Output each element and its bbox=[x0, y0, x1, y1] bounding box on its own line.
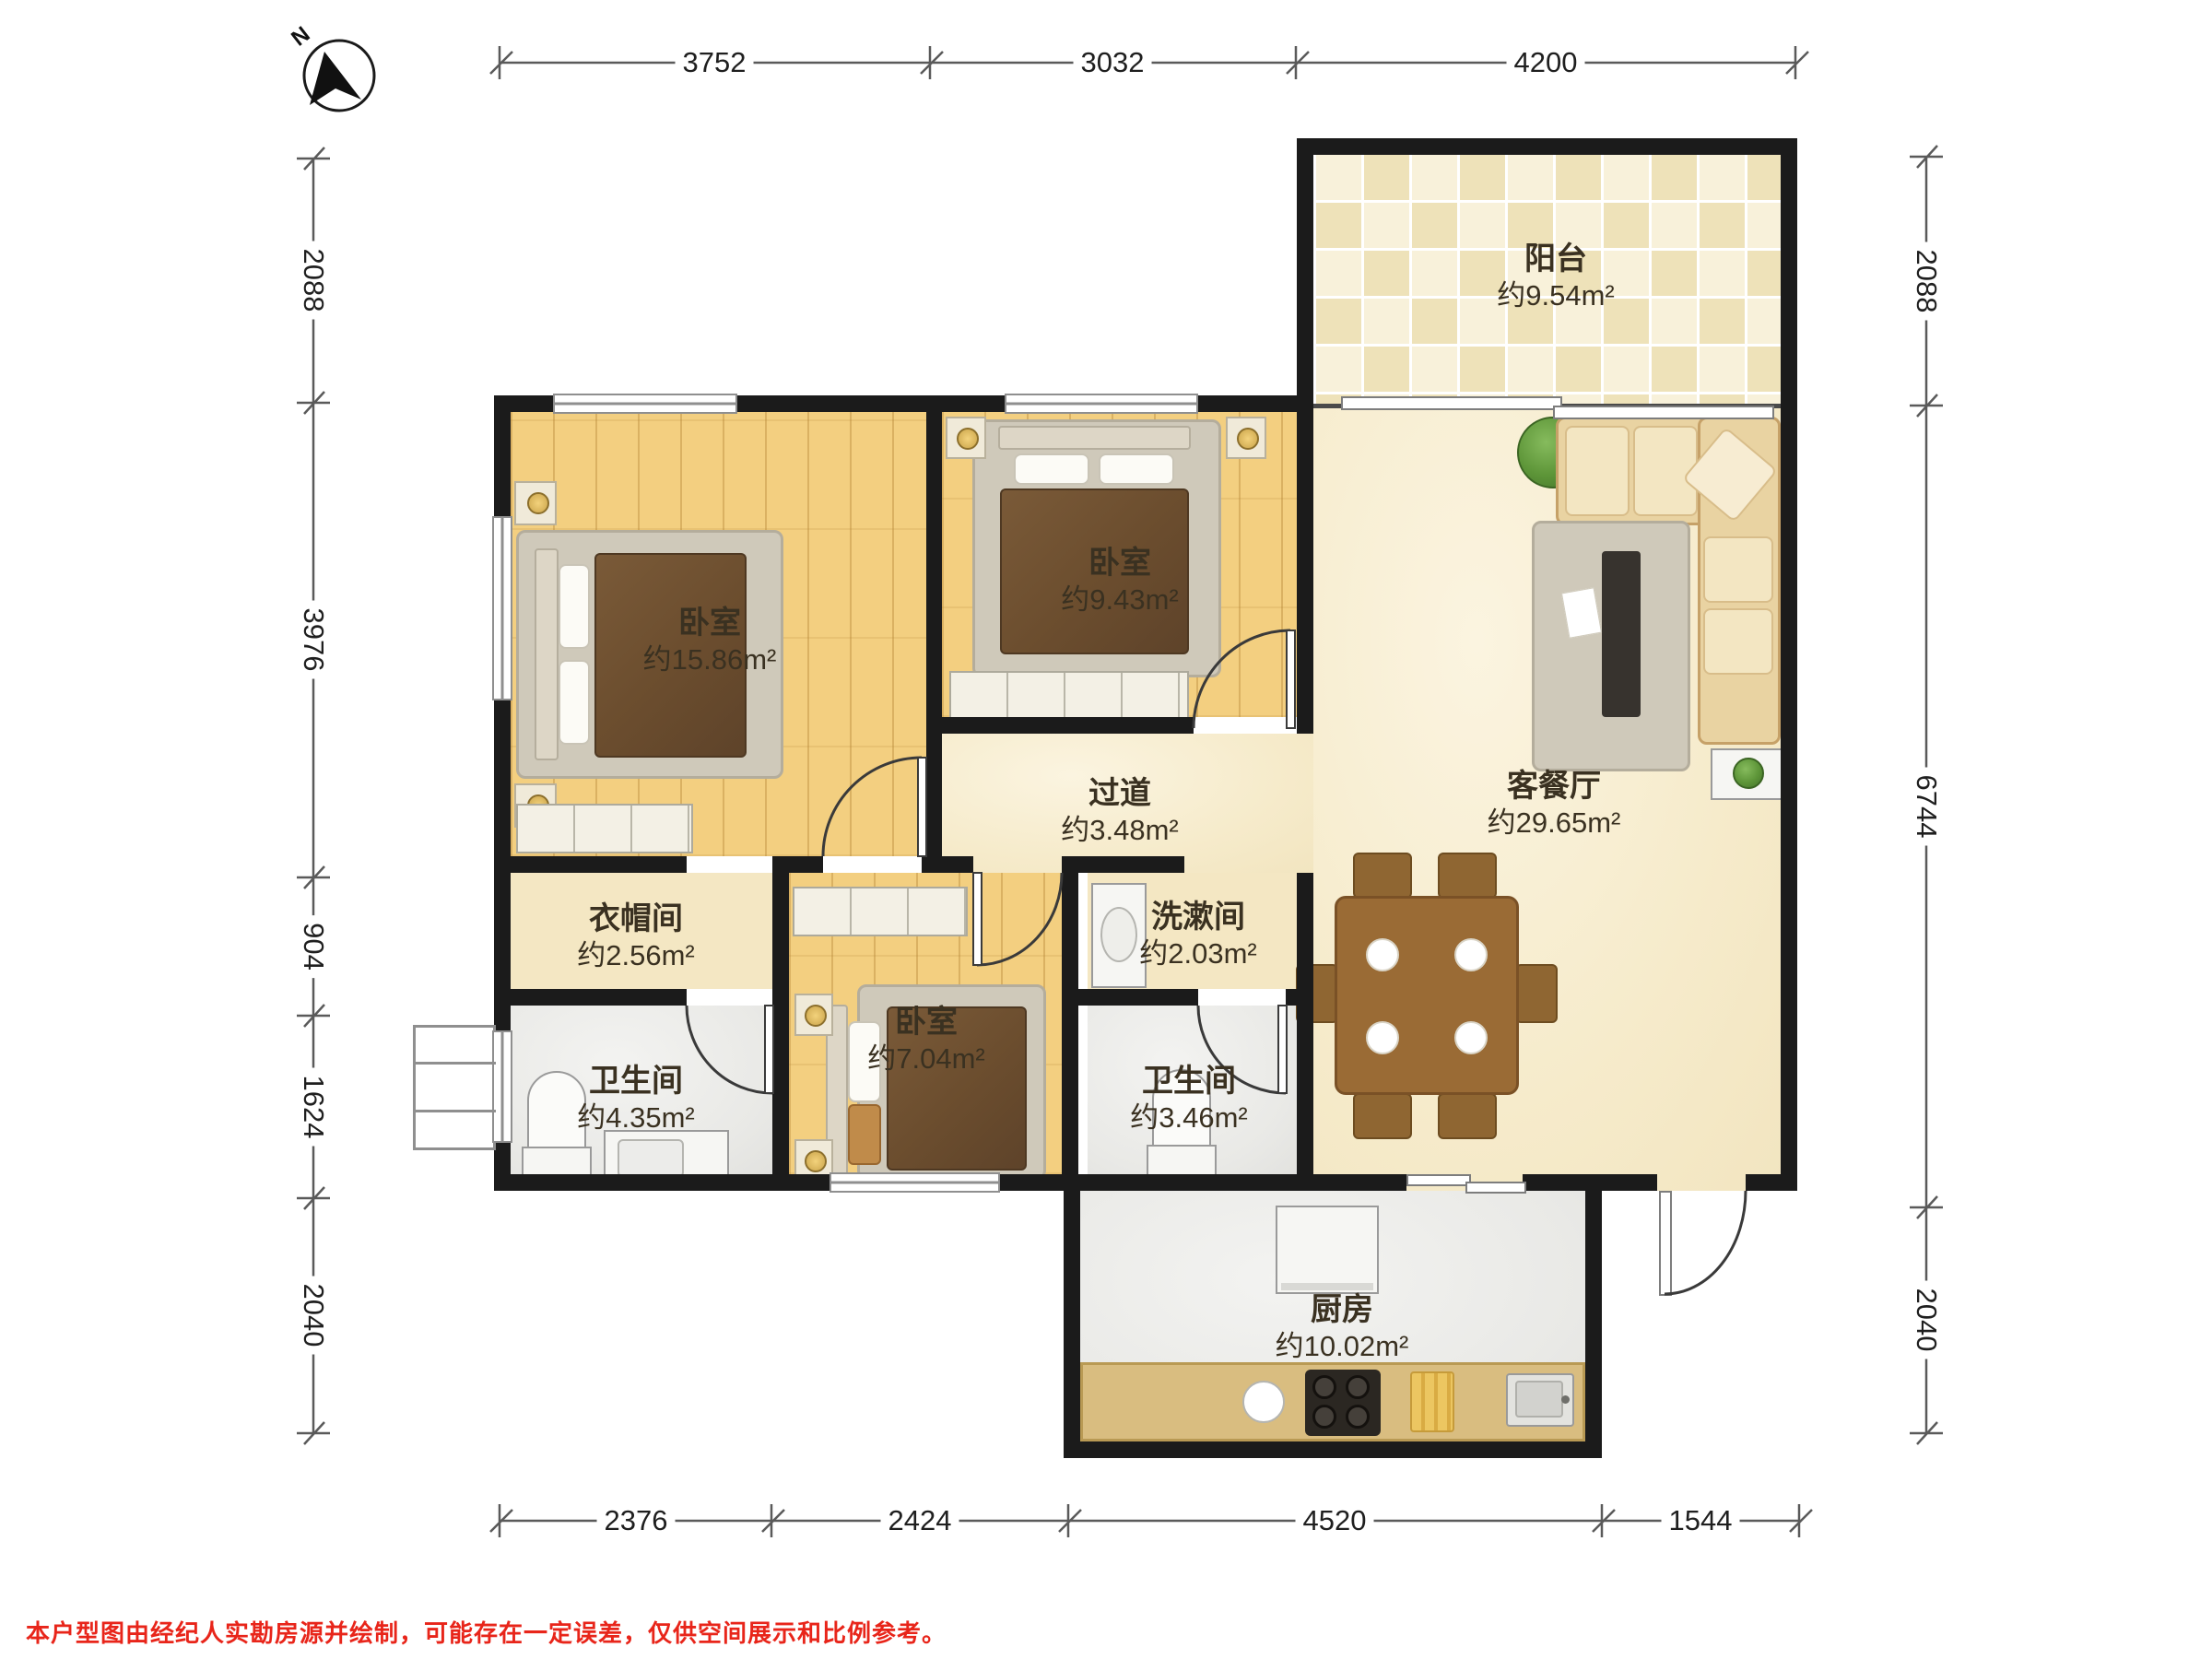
room-area: 约7.04m² bbox=[867, 1041, 984, 1076]
room-label-bedroom-second: 卧室 约9.43m² bbox=[1061, 545, 1178, 617]
room-area: 约10.02m² bbox=[1276, 1329, 1409, 1363]
door-arc bbox=[977, 873, 1062, 965]
room-label-balcony: 阳台 约9.54m² bbox=[1497, 241, 1614, 312]
room-name: 客餐厅 bbox=[1488, 768, 1621, 806]
room-name: 卫生间 bbox=[1130, 1063, 1247, 1100]
door-leaf bbox=[765, 1006, 773, 1093]
room-label-bedroom-master: 卧室 约15.86m² bbox=[643, 605, 777, 677]
room-area: 约4.35m² bbox=[577, 1100, 694, 1135]
dim-label: 3752 bbox=[676, 46, 754, 79]
room-area: 约2.03m² bbox=[1139, 936, 1256, 971]
dim-label: 904 bbox=[297, 915, 330, 978]
door-arc bbox=[687, 1006, 772, 1093]
room-name: 厨房 bbox=[1276, 1291, 1409, 1329]
door-leaf bbox=[1287, 630, 1295, 728]
room-area: 约9.54m² bbox=[1497, 278, 1614, 312]
room-label-washroom: 洗漱间 约2.03m² bbox=[1139, 899, 1256, 971]
room-label-bathroom-mid: 卫生间 约3.46m² bbox=[1130, 1063, 1247, 1135]
room-name: 卫生间 bbox=[577, 1063, 694, 1100]
room-name: 过道 bbox=[1061, 775, 1178, 813]
room-area: 约15.86m² bbox=[643, 642, 777, 677]
dim-label: 6744 bbox=[1910, 768, 1943, 846]
door-arc bbox=[1194, 630, 1290, 728]
dim-label: 3032 bbox=[1074, 46, 1152, 79]
room-name: 卧室 bbox=[867, 1004, 984, 1041]
entry-door-arc bbox=[1665, 1191, 1746, 1294]
door-leaf bbox=[1278, 1006, 1287, 1093]
room-name: 洗漱间 bbox=[1139, 899, 1256, 936]
door-leaf bbox=[973, 873, 982, 965]
dim-label: 2040 bbox=[1910, 1281, 1943, 1359]
room-label-living-dining: 客餐厅 约29.65m² bbox=[1488, 768, 1621, 840]
room-name: 衣帽间 bbox=[577, 900, 694, 938]
compass bbox=[304, 41, 374, 111]
dim-label: 2088 bbox=[1910, 242, 1943, 321]
dim-label: 1544 bbox=[1662, 1504, 1740, 1537]
room-area: 约3.46m² bbox=[1130, 1100, 1247, 1135]
dim-label: 4200 bbox=[1507, 46, 1585, 79]
door-arc bbox=[823, 758, 922, 856]
dim-label: 2376 bbox=[597, 1504, 676, 1537]
room-label-cloakroom: 衣帽间 约2.56m² bbox=[577, 900, 694, 972]
room-area: 约9.43m² bbox=[1061, 582, 1178, 617]
room-label-kitchen: 厨房 约10.02m² bbox=[1276, 1291, 1409, 1363]
room-area: 约3.48m² bbox=[1061, 813, 1178, 847]
dim-label: 2088 bbox=[297, 241, 330, 320]
room-label-hallway: 过道 约3.48m² bbox=[1061, 775, 1178, 847]
door-leaf bbox=[918, 758, 926, 856]
room-name: 卧室 bbox=[643, 605, 777, 642]
room-name: 阳台 bbox=[1497, 241, 1614, 278]
floor-plan: N 3752 3032 4200 2376 2424 4520 1544 208… bbox=[0, 0, 2212, 1659]
room-label-bedroom-small: 卧室 约7.04m² bbox=[867, 1004, 984, 1076]
dim-label: 2040 bbox=[297, 1277, 330, 1355]
room-area: 约2.56m² bbox=[577, 938, 694, 972]
dim-label: 3976 bbox=[297, 601, 330, 679]
dim-label: 2424 bbox=[881, 1504, 959, 1537]
room-label-bathroom-left: 卫生间 约4.35m² bbox=[577, 1063, 694, 1135]
room-name: 卧室 bbox=[1061, 545, 1178, 582]
room-area: 约29.65m² bbox=[1488, 806, 1621, 840]
dim-label: 4520 bbox=[1296, 1504, 1374, 1537]
dim-label: 1624 bbox=[297, 1068, 330, 1147]
